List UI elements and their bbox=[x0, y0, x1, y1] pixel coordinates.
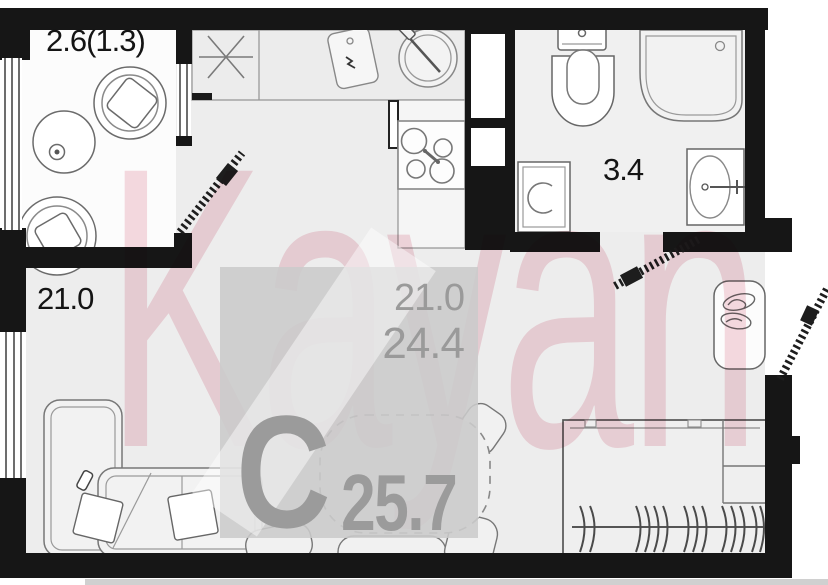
living-room-area-label: 21.0 bbox=[37, 283, 93, 314]
cooktop-icon bbox=[398, 121, 465, 189]
shoe-cabinet-icon bbox=[714, 281, 765, 369]
balcony-window-icon bbox=[2, 58, 22, 230]
overlay-total-area: 24.4 bbox=[382, 322, 464, 366]
living-room-window-icon bbox=[2, 332, 24, 478]
balcony-door-window-icon bbox=[176, 56, 192, 146]
wash-basin-icon bbox=[687, 149, 745, 225]
overlay-total-area-big: 25.7 bbox=[341, 463, 456, 543]
corner-bath-icon bbox=[640, 30, 742, 121]
pillow-icon bbox=[73, 493, 124, 544]
round-table-icon bbox=[33, 111, 95, 173]
armchair-icon bbox=[94, 67, 166, 139]
overlay-plan-type-letter: С bbox=[236, 392, 331, 552]
neighbor-outline bbox=[85, 579, 828, 585]
toilet-icon bbox=[552, 24, 614, 126]
balcony-area-label: 2.6(1.3) bbox=[46, 25, 145, 56]
washing-machine-icon bbox=[518, 162, 570, 232]
area-overlay-box: 21.0 24.4 С 25.7 bbox=[220, 267, 478, 538]
bathroom-area-label: 3.4 bbox=[603, 154, 643, 185]
wardrobe-icon bbox=[563, 420, 766, 558]
overlay-living-area: 21.0 bbox=[394, 279, 464, 317]
floor-plan: Kayan 2.6(1.3) 21.0 3.4 21.0 24.4 С 25.7 bbox=[0, 0, 828, 585]
balcony-bottom-wall bbox=[0, 247, 192, 268]
